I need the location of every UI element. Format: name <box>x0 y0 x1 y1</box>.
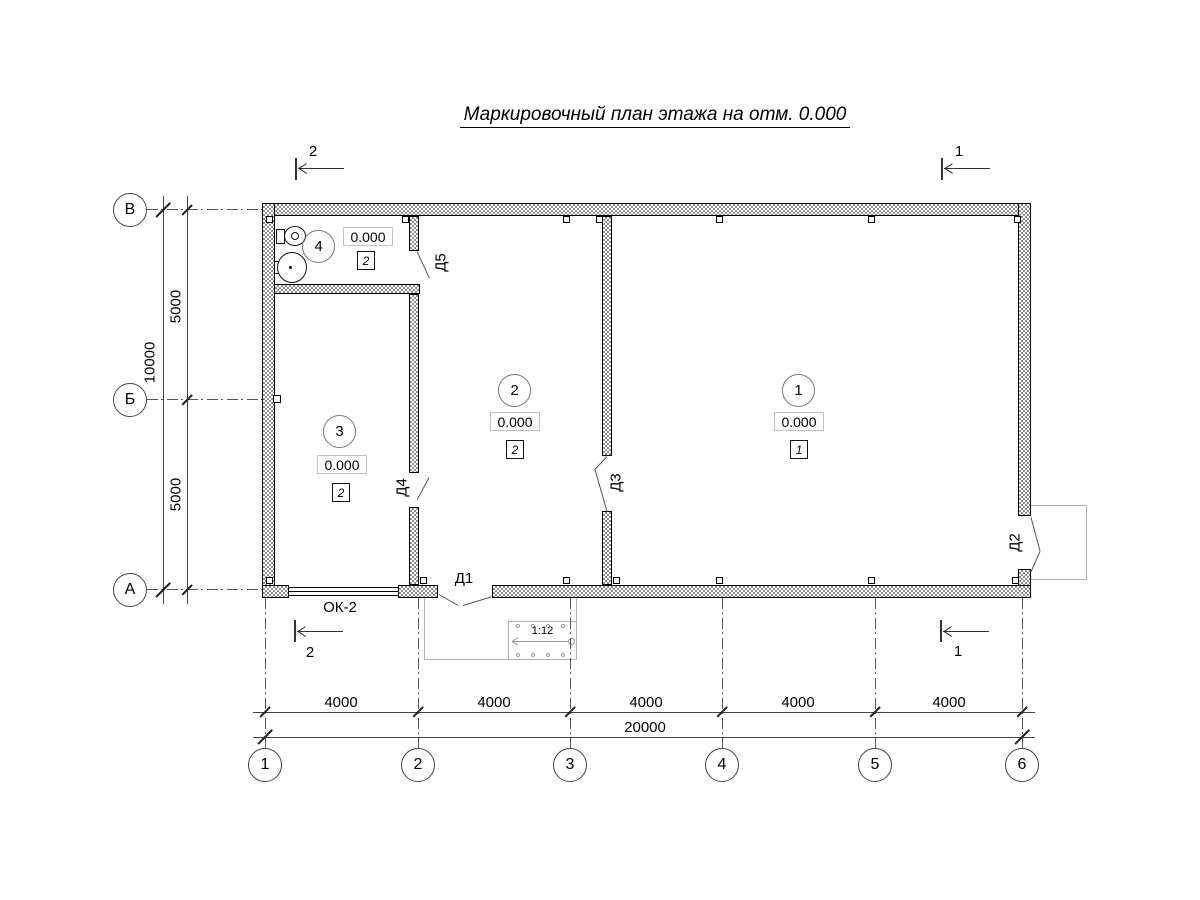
partition-a-top <box>409 216 419 251</box>
axis-col-1: 1 <box>248 748 282 782</box>
column-mark <box>716 577 723 584</box>
room-2-number: 2 <box>498 374 531 407</box>
dim-line-left-total <box>163 196 164 604</box>
section-mark-tick <box>295 158 297 180</box>
ramp-dot <box>561 653 565 657</box>
dim-left-total: 10000 <box>142 330 159 396</box>
section-mark-shaft <box>943 631 989 632</box>
door-d4-leader <box>417 477 430 500</box>
door-d5-leader <box>417 251 430 278</box>
dim-bottom-span-4: 4000 <box>773 694 823 711</box>
sink-drain <box>289 266 292 269</box>
ramp-slope-label: 1:12 <box>508 625 577 637</box>
section-mark-shaft <box>297 631 343 632</box>
column-mark <box>868 577 875 584</box>
partition-b-bottom <box>602 511 612 585</box>
column-mark <box>613 577 620 584</box>
axis-line-3 <box>570 598 571 749</box>
axis-row-a: А <box>113 573 147 607</box>
dim-bottom-span-5: 4000 <box>924 694 974 711</box>
column-mark <box>266 577 273 584</box>
axis-line-2 <box>418 598 419 749</box>
partition-a-mid <box>409 294 419 473</box>
wall-bottom-mid <box>398 585 438 598</box>
door-d1-label: Д1 <box>449 570 479 587</box>
dim-bottom-span-1: 4000 <box>316 694 366 711</box>
section-mark-label: 1 <box>950 643 966 660</box>
column-mark <box>563 577 570 584</box>
ramp-arrow-shaft <box>512 641 571 642</box>
door-d5-label: Д5 <box>433 248 450 278</box>
section-mark-tick <box>940 620 942 642</box>
axis-line-v-row <box>147 209 273 210</box>
wall-top <box>262 203 1030 216</box>
ramp-dot <box>516 653 520 657</box>
axis-col-6: 6 <box>1005 748 1039 782</box>
wall-room4-bottom <box>274 284 420 294</box>
column-mark <box>1012 577 1019 584</box>
axis-col-2: 2 <box>401 748 435 782</box>
wall-bottom-left <box>262 585 289 598</box>
axis-row-b: Б <box>113 383 147 417</box>
column-mark <box>1014 216 1021 223</box>
room-4-type: 2 <box>357 251 375 270</box>
wall-right-upper <box>1018 203 1031 516</box>
dim-bottom-span-2: 4000 <box>469 694 519 711</box>
section-mark-tick <box>941 158 943 180</box>
column-mark <box>596 216 603 223</box>
section-mark-label: 2 <box>305 143 321 160</box>
dim-line-bottom-total <box>253 737 1035 738</box>
axis-line-b-row <box>147 399 273 400</box>
column-mark <box>716 216 723 223</box>
floor-plan-drawing: Маркировочный план этажа на отм. 0.000 1… <box>0 0 1200 900</box>
door-d3-leader <box>595 469 608 512</box>
dim-line-bottom-spans <box>253 712 1035 713</box>
dim-bottom-total: 20000 <box>610 719 680 736</box>
dim-left-span-2: 5000 <box>168 465 185 525</box>
axis-col-3: 3 <box>553 748 587 782</box>
partition-b-top <box>602 216 612 456</box>
right-porch <box>1031 505 1087 580</box>
room-3-elevation: 0.000 <box>317 455 367 474</box>
room-1-number: 1 <box>782 374 815 407</box>
room-2-type: 2 <box>506 440 524 459</box>
door-d4-label: Д4 <box>394 473 411 503</box>
section-mark-tick <box>294 620 296 642</box>
axis-line-6 <box>1022 598 1023 749</box>
column-mark <box>420 577 427 584</box>
axis-line-a-row <box>147 589 273 590</box>
door-d2-label: Д2 <box>1007 528 1024 558</box>
column-mark <box>868 216 875 223</box>
ramp-dot <box>531 653 535 657</box>
room-4-number: 4 <box>302 230 335 263</box>
axis-line-1 <box>265 598 266 749</box>
section-mark-label: 2 <box>302 644 318 661</box>
axis-line-4 <box>722 598 723 749</box>
axis-row-v: В <box>113 193 147 227</box>
room-1-elevation: 0.000 <box>774 412 824 431</box>
section-mark-shaft <box>944 168 990 169</box>
axis-col-4: 4 <box>705 748 739 782</box>
dim-bottom-span-3: 4000 <box>621 694 671 711</box>
door-d3-label: Д3 <box>608 468 625 498</box>
section-mark-label: 1 <box>951 143 967 160</box>
room-2-elevation: 0.000 <box>490 412 540 431</box>
column-mark <box>563 216 570 223</box>
room-1-type: 1 <box>790 440 808 459</box>
room-4-elevation: 0.000 <box>343 227 393 246</box>
dim-left-span-1: 5000 <box>168 277 185 337</box>
column-mark <box>266 216 273 223</box>
partition-a-bottom <box>409 507 419 585</box>
room-3-type: 2 <box>332 483 350 502</box>
sink-bowl <box>277 252 307 283</box>
axis-col-5: 5 <box>858 748 892 782</box>
section-mark-shaft <box>298 168 344 169</box>
room-3-number: 3 <box>323 415 356 448</box>
column-mark <box>402 216 409 223</box>
toilet-bowl-inner <box>291 232 299 240</box>
wall-bottom-right <box>492 585 1031 598</box>
ramp-dot <box>546 653 550 657</box>
axis-line-5 <box>875 598 876 749</box>
door-d3-leader <box>594 456 607 470</box>
window-ok2 <box>289 587 398 596</box>
drawing-title: Маркировочный план этажа на отм. 0.000 <box>380 104 930 126</box>
window-ok2-label: ОК-2 <box>305 599 375 616</box>
column-mark <box>273 395 281 403</box>
